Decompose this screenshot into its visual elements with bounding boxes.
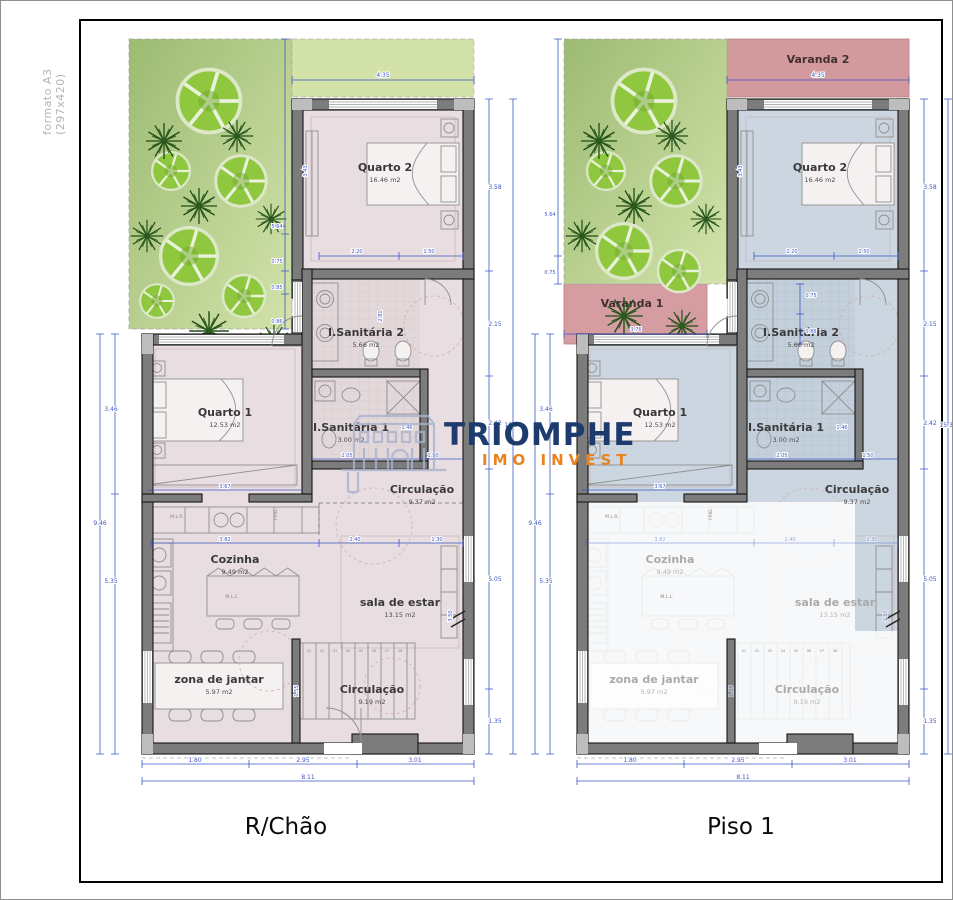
stair-number: 05 (794, 649, 798, 653)
room-label-circulacao2: Circulação (775, 683, 840, 696)
room-label-quarto1: Quarto 1 (633, 406, 687, 419)
room-area-jantar: 5.97 m2 (640, 688, 667, 696)
dim-left: 5.35 (104, 578, 118, 585)
varanda2-label: Varanda 2 (787, 53, 850, 66)
dim-cozinha: 3.82 (654, 537, 665, 543)
stair-number: 07 (385, 649, 389, 653)
room-area-cozinha: 9.49 m2 (656, 568, 683, 576)
dim-right: 5.05 (923, 576, 937, 583)
room-area-quarto2: 16.46 m2 (804, 176, 835, 184)
kitchen-label-mll: M.L.L. (225, 594, 238, 600)
dim-cozinha: 3.82 (219, 537, 230, 543)
dim-sala: 2.40 (784, 537, 795, 543)
stair-number: 06 (372, 649, 376, 653)
dim-right: 2.15 (923, 321, 937, 328)
room-area-isanitaria2: 5.66 m2 (787, 341, 814, 349)
room-area-circulacao: 9.37 m2 (843, 498, 870, 506)
dim-garden: 5.64 (544, 212, 555, 218)
dim-left: 5.35 (539, 578, 553, 585)
dim-right-total: 15.30 (939, 422, 953, 429)
dim-wall: 3.43 (738, 165, 744, 176)
dim-bottom: 2.95 (731, 757, 745, 764)
kitchen-label-mlr: M.L.R. (605, 514, 619, 520)
plan-title-ground-floor: R/Chão (186, 814, 386, 840)
dim-q2: 1.50 (858, 249, 869, 255)
dim-is2: 2.81 (378, 310, 384, 321)
dim-right: 3.58 (488, 184, 502, 191)
dim-right: 1.35 (923, 718, 937, 725)
room-label-sala: sala de estar (360, 596, 441, 609)
room-area-quarto2: 16.46 m2 (369, 176, 400, 184)
dim-is1: 2.05 (341, 453, 352, 459)
dim-right: 2.15 (488, 321, 502, 328)
dim-is1-side: 1.46 (401, 425, 412, 431)
dim-is1: 1.50 (427, 453, 438, 459)
kitchen-label-mlr: M.L.R. (170, 514, 184, 520)
room-label-circulacao2: Circulação (340, 683, 405, 696)
room-label-isanitaria2: I.Sanitária 2 (763, 326, 839, 339)
dim-garden: 0.75 (544, 270, 555, 276)
dim-sala-side: 3.50 (883, 610, 889, 621)
dim-varanda1-side: 0.75 (805, 293, 816, 299)
dim-q1: 3.67 (219, 484, 230, 490)
stair-number: 02 (755, 649, 759, 653)
room-area-quarto1: 12.53 m2 (209, 421, 240, 429)
dim-sala: 2.40 (349, 537, 360, 543)
stair-number: 01 (307, 649, 311, 653)
room-area-sala: 13.15 m2 (819, 611, 850, 619)
dim-sala: 1.30 (431, 537, 442, 543)
dim-left: 3.46 (539, 406, 553, 413)
dim-bottom: 1.80 (623, 757, 637, 764)
dim-is1: 2.05 (776, 453, 787, 459)
room-area-isanitaria2: 5.66 m2 (352, 341, 379, 349)
dim-q2: 2.20 (351, 249, 362, 255)
room-label-circulacao: Circulação (825, 483, 890, 496)
stair-number: 04 (781, 649, 785, 653)
kitchen-label-frig: FRIG. (708, 508, 714, 520)
stair-number: 01 (742, 649, 746, 653)
sheet-format-label: formato A3 (297x420) (41, 15, 71, 135)
dim-right: 5.05 (488, 576, 502, 583)
room-area-isanitaria1: 3.00 m2 (337, 436, 364, 444)
dim-q1: 3.67 (654, 484, 665, 490)
dim-garden: 0.86 (271, 319, 282, 325)
dim-left-total: 9.46 (93, 520, 107, 527)
stair-number: 03 (333, 649, 337, 653)
dim-q2: 2.20 (786, 249, 797, 255)
dim-bottom: 1.80 (188, 757, 202, 764)
ghost-overlay (588, 502, 898, 743)
dim-garden: 0.75 (271, 259, 282, 265)
dim-bottom-total: 8.11 (736, 774, 750, 781)
stair-number: 02 (320, 649, 324, 653)
dim-stair: 1.55 (729, 685, 735, 696)
dim-garden: 5.64 (271, 224, 282, 230)
plan-title-first-floor: Piso 1 (641, 814, 841, 840)
stair-number: 03 (768, 649, 772, 653)
dim-varanda1: 3.76 (630, 327, 641, 333)
floorplan-ground-floor: Quarto 2 16.46 m2 I.Sanitária 2 5.66 m2 … (89, 31, 549, 811)
dim-right: 2.42 (488, 420, 502, 427)
stair-number: 05 (359, 649, 363, 653)
room-area-circulacao2: 9.19 m2 (793, 698, 820, 706)
room-area-jantar: 5.97 m2 (205, 688, 232, 696)
dim-right: 3.58 (923, 184, 937, 191)
dim-bottom: 3.01 (843, 757, 857, 764)
room-area-quarto1: 12.53 m2 (644, 421, 675, 429)
room-area-cozinha: 9.49 m2 (221, 568, 248, 576)
dim-q2: 1.50 (423, 249, 434, 255)
room-label-isanitaria1: I.Sanitária 1 (313, 421, 389, 434)
dim-top: 4.35 (376, 72, 390, 79)
dim-sala-side: 3.50 (448, 610, 454, 621)
room-label-isanitaria1: I.Sanitária 1 (748, 421, 824, 434)
dim-bottom: 2.95 (296, 757, 310, 764)
dim-left-total: 9.46 (528, 520, 542, 527)
dim-top: 4.35 (811, 72, 825, 79)
room-label-jantar: zona de jantar (609, 673, 699, 686)
dim-bottom: 3.01 (408, 757, 422, 764)
stair-number: 07 (820, 649, 824, 653)
room-label-cozinha: Cozinha (211, 553, 260, 566)
dim-sala: 1.30 (866, 537, 877, 543)
room-label-jantar: zona de jantar (174, 673, 264, 686)
room-label-quarto2: Quarto 2 (358, 161, 412, 174)
dim-stair: 1.55 (294, 685, 300, 696)
room-area-sala: 13.15 m2 (384, 611, 415, 619)
room-label-sala: sala de estar (795, 596, 876, 609)
room-label-circulacao: Circulação (390, 483, 455, 496)
dim-right-total: 15.30 (504, 422, 521, 429)
room-label-cozinha: Cozinha (646, 553, 695, 566)
dim-left: 3.46 (104, 406, 118, 413)
dim-wall: 3.43 (303, 165, 309, 176)
room-label-quarto1: Quarto 1 (198, 406, 252, 419)
room-area-circulacao: 9.37 m2 (408, 498, 435, 506)
dim-is1: 1.50 (862, 453, 873, 459)
dim-varanda1-side: 0.86 (805, 329, 816, 335)
dim-is1-side: 1.46 (836, 425, 847, 431)
drawing-sheet: formato A3 (297x420) (0, 0, 953, 900)
room-label-quarto2: Quarto 2 (793, 161, 847, 174)
kitchen-label-frig: FRIG. (273, 508, 279, 520)
stair-number: 08 (398, 649, 402, 653)
room-label-isanitaria2: I.Sanitária 2 (328, 326, 404, 339)
dim-right: 2.42 (923, 420, 937, 427)
dim-garden: 0.85 (271, 285, 282, 291)
floorplan-first-floor: Varanda 2 Varanda 1 (524, 31, 953, 811)
dim-bottom-total: 8.11 (301, 774, 315, 781)
varanda-2: Varanda 2 (727, 39, 909, 97)
room-area-circulacao2: 9.19 m2 (358, 698, 385, 706)
kitchen-label-mll: M.L.L. (660, 594, 673, 600)
stair-number: 04 (346, 649, 350, 653)
stair-number: 08 (833, 649, 837, 653)
room-area-isanitaria1: 3.00 m2 (772, 436, 799, 444)
dim-right: 1.35 (488, 718, 502, 725)
stair-number: 06 (807, 649, 811, 653)
